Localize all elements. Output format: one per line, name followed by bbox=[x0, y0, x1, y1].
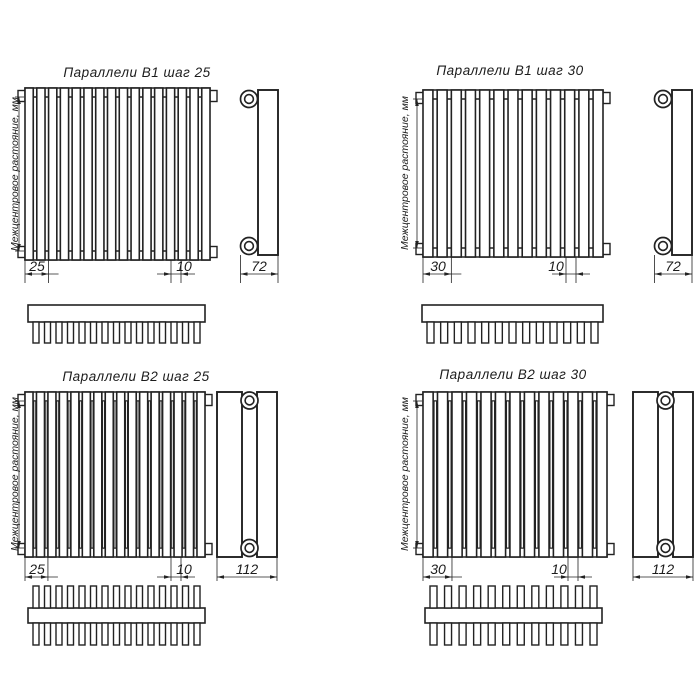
tube-width-dimension: 10 bbox=[176, 561, 192, 577]
step-dimension: 25 bbox=[28, 561, 45, 577]
drawing-canvas: Параллели В1 шаг 25 Межцентровое растоян… bbox=[0, 0, 700, 700]
diagram-title: Параллели В2 шаг 25 bbox=[62, 369, 209, 384]
depth-dimension: 72 bbox=[665, 258, 681, 274]
diagram-geometry bbox=[413, 90, 692, 343]
depth-dimension: 72 bbox=[251, 258, 267, 274]
step-dimension: 30 bbox=[430, 561, 446, 577]
depth-dimension: 112 bbox=[236, 561, 259, 577]
diagram-b2-step25: Параллели В2 шаг 25 Межцентровое растоян… bbox=[9, 369, 277, 645]
tube-width-dimension: 10 bbox=[548, 258, 564, 274]
depth-dimension: 112 bbox=[652, 561, 675, 577]
step-dimension: 30 bbox=[430, 258, 446, 274]
diagram-geometry bbox=[15, 392, 277, 645]
diagram-b1-step30: Параллели В1 шаг 30 Межцентровое растоян… bbox=[399, 63, 692, 343]
diagram-title: Параллели В2 шаг 30 bbox=[439, 367, 586, 382]
technical-drawing: Параллели В1 шаг 25 Межцентровое растоян… bbox=[0, 0, 700, 700]
tube-width-dimension: 10 bbox=[551, 561, 567, 577]
diagram-geometry bbox=[413, 392, 693, 645]
diagram-title: Параллели В1 шаг 30 bbox=[436, 63, 583, 78]
diagram-b1-step25: Параллели В1 шаг 25 Межцентровое растоян… bbox=[9, 65, 278, 343]
diagram-title: Параллели В1 шаг 25 bbox=[63, 65, 210, 80]
step-dimension: 25 bbox=[28, 258, 45, 274]
diagram-geometry bbox=[15, 88, 278, 343]
axis-label: Межцентровое растояние, мм bbox=[399, 397, 411, 551]
diagram-b2-step30: Параллели В2 шаг 30 Межцентровое растоян… bbox=[399, 367, 693, 645]
tube-width-dimension: 10 bbox=[176, 258, 192, 274]
axis-label: Межцентровое растояние, мм bbox=[399, 96, 411, 250]
